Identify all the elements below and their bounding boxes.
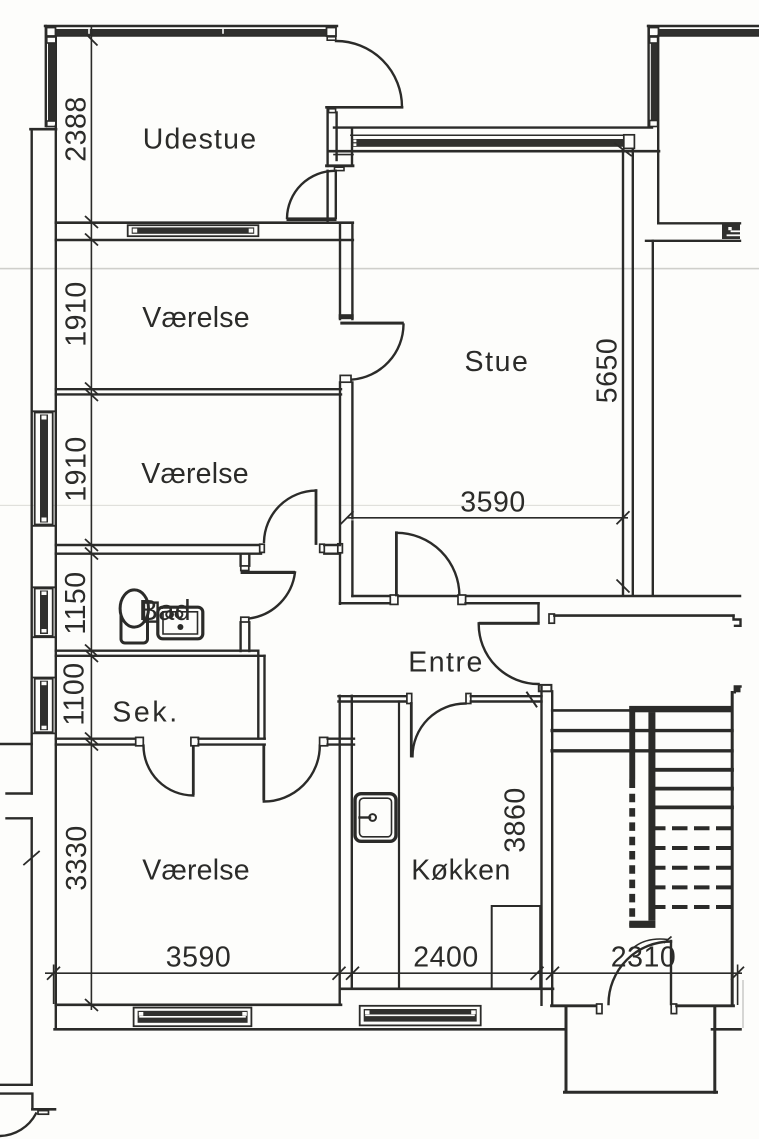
svg-text:2310: 2310 xyxy=(611,942,676,974)
svg-text:5650: 5650 xyxy=(592,338,624,403)
svg-text:Stue: Stue xyxy=(464,346,529,378)
svg-text:Bad: Bad xyxy=(139,595,191,627)
svg-text:Køkken: Køkken xyxy=(411,855,511,887)
svg-text:1910: 1910 xyxy=(61,436,93,501)
svg-text:1910: 1910 xyxy=(61,281,93,346)
svg-text:3590: 3590 xyxy=(166,942,231,974)
svg-text:3860: 3860 xyxy=(500,787,532,852)
svg-text:3590: 3590 xyxy=(460,487,525,519)
svg-text:1150: 1150 xyxy=(60,571,92,634)
svg-text:Værelse: Værelse xyxy=(141,458,249,490)
svg-text:1100: 1100 xyxy=(59,662,91,725)
svg-text:3330: 3330 xyxy=(61,825,93,890)
svg-text:Entre: Entre xyxy=(408,646,484,678)
svg-text:Sek.: Sek. xyxy=(112,697,179,729)
svg-text:2388: 2388 xyxy=(61,96,93,161)
svg-text:2400: 2400 xyxy=(413,942,478,974)
svg-text:Udestue: Udestue xyxy=(143,124,258,156)
svg-text:Værelse: Værelse xyxy=(142,855,250,887)
svg-text:Værelse: Værelse xyxy=(142,302,250,334)
